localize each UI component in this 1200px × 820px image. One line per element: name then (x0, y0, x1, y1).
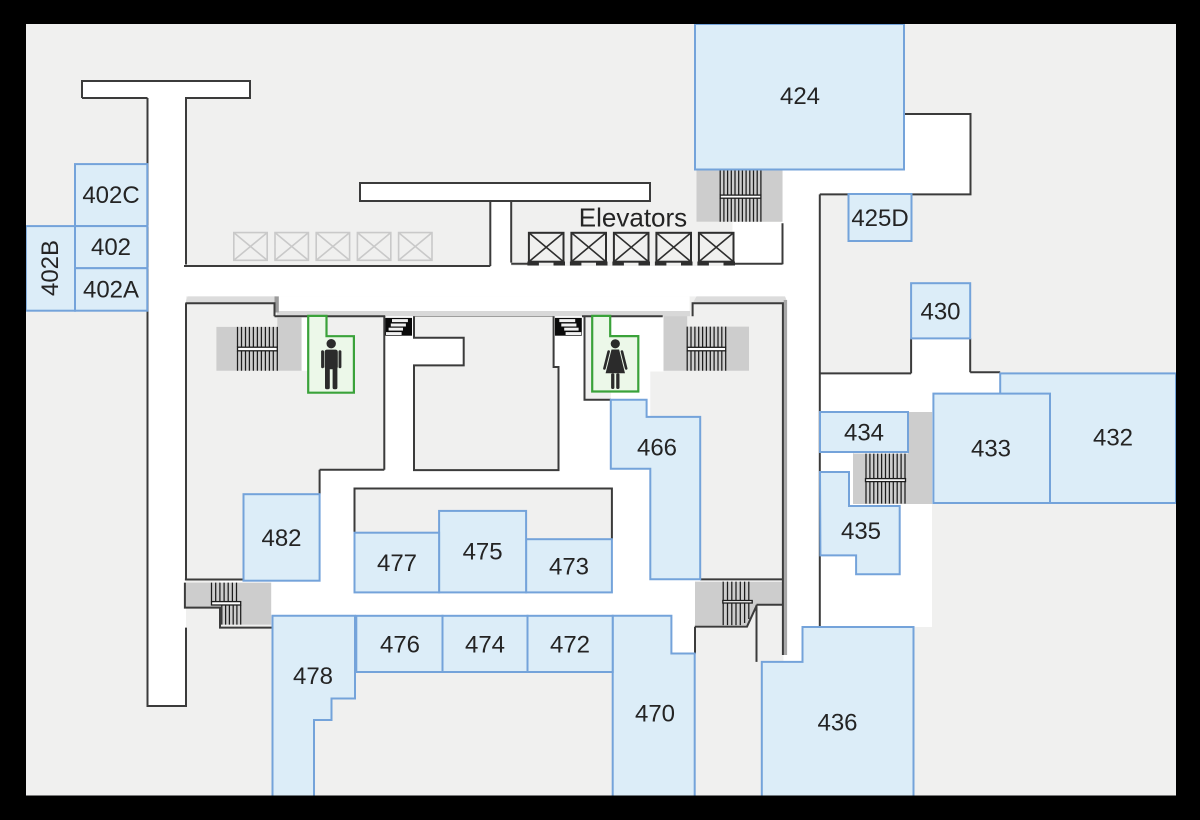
svg-text:432: 432 (1093, 425, 1133, 452)
svg-text:433: 433 (971, 436, 1011, 463)
svg-text:476: 476 (380, 632, 420, 659)
svg-text:478: 478 (293, 663, 333, 690)
svg-text:Elevators: Elevators (579, 203, 687, 233)
svg-text:475: 475 (463, 539, 503, 566)
svg-text:430: 430 (920, 299, 960, 326)
svg-text:477: 477 (377, 550, 417, 577)
svg-text:424: 424 (780, 83, 820, 110)
svg-text:402B: 402B (37, 240, 64, 296)
svg-text:436: 436 (817, 710, 857, 737)
svg-text:482: 482 (261, 525, 301, 552)
svg-text:472: 472 (550, 632, 590, 659)
svg-text:474: 474 (465, 632, 505, 659)
svg-text:466: 466 (637, 435, 677, 462)
svg-text:434: 434 (844, 420, 884, 447)
svg-text:473: 473 (549, 554, 589, 581)
svg-text:402: 402 (91, 234, 131, 261)
svg-text:402A: 402A (83, 277, 139, 304)
svg-text:425D: 425D (851, 205, 908, 232)
svg-text:435: 435 (841, 518, 881, 545)
svg-text:470: 470 (635, 701, 675, 728)
svg-text:402C: 402C (82, 182, 139, 209)
